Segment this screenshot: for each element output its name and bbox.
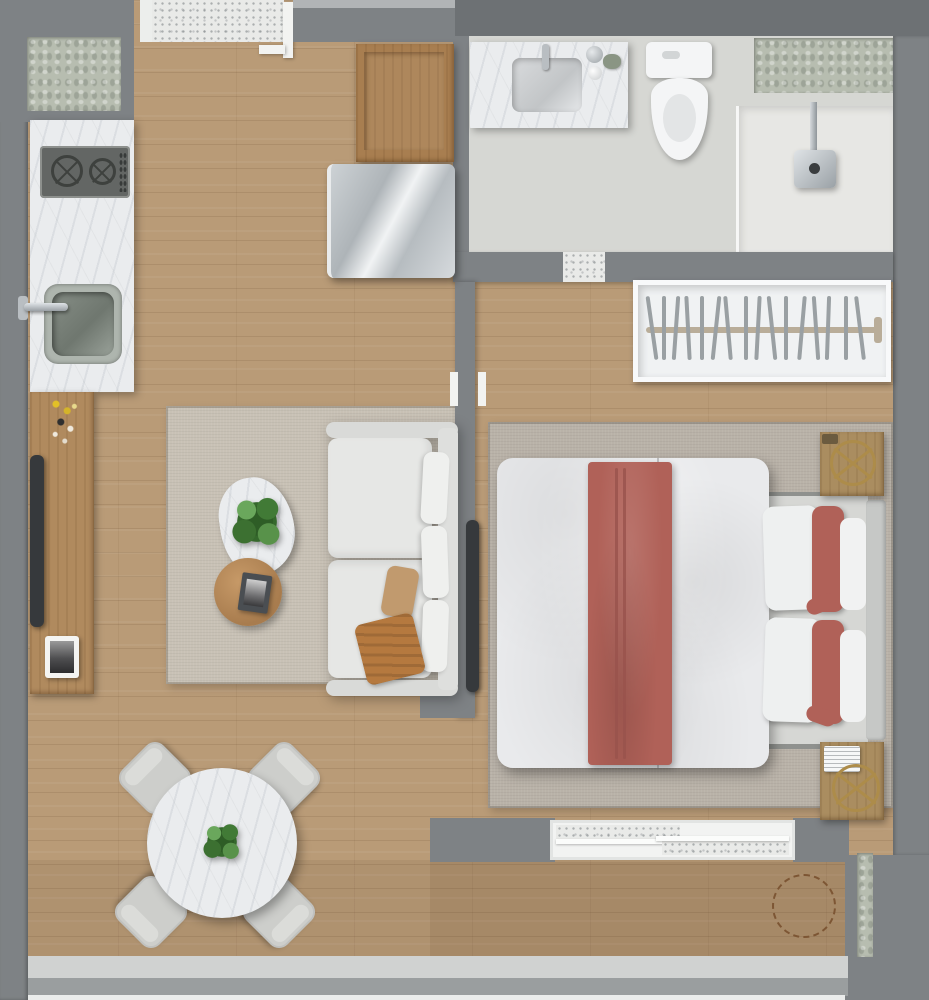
shower-head-center — [809, 163, 820, 174]
sofa-back-pillow-2 — [421, 526, 449, 599]
window-sill — [28, 956, 848, 978]
closet-hanger — [844, 296, 848, 360]
right-wall — [893, 36, 929, 855]
magazine-cover — [243, 579, 266, 608]
closet-hanger — [662, 296, 666, 360]
closet-hanger — [784, 296, 788, 360]
bed-runner — [588, 462, 672, 765]
vanity-accessory-cup — [588, 66, 602, 80]
kitchen-sink — [44, 284, 122, 364]
bathroom-bottom-wall — [453, 252, 893, 282]
toilet-flush-button — [662, 51, 680, 59]
toilet-tank — [646, 42, 712, 78]
shower-head — [794, 150, 836, 188]
cooktop-burner-large — [51, 155, 83, 187]
sink-basin — [52, 292, 114, 356]
console-flowers — [44, 394, 84, 450]
photo-portrait — [50, 641, 74, 673]
closet-rail-end — [874, 317, 882, 343]
kitchen-top-wall — [293, 8, 455, 42]
toilet-seat — [663, 94, 696, 142]
bathroom-door-threshold — [563, 252, 605, 282]
closet-hanger — [700, 296, 704, 360]
nightstand-top-item — [822, 434, 838, 444]
sliding-door — [550, 820, 795, 860]
shower-arm — [810, 102, 817, 154]
nightstand-top-tray — [830, 440, 876, 486]
shower-window — [754, 38, 893, 93]
bed-pillow-white-4 — [840, 630, 866, 722]
dining-table-plant — [200, 820, 244, 864]
photo-frame — [45, 636, 79, 678]
top-wall-edge — [293, 0, 455, 8]
cooktop-burner-small — [89, 158, 116, 185]
bathroom-top-wall — [455, 0, 929, 36]
balcony-slot-window — [857, 853, 873, 957]
sofa-back-pillow-3 — [421, 600, 449, 673]
magazine — [238, 572, 273, 614]
dashed-placement-circle — [772, 874, 836, 938]
floor-plan — [0, 0, 929, 1000]
bedroom-bottom-wall-left — [430, 818, 555, 862]
coffee-table-plant — [228, 492, 286, 552]
bed-pillow-white-2 — [840, 518, 866, 610]
nightstand-bottom-tray — [832, 764, 880, 812]
shower-glass-partition — [736, 106, 739, 258]
entry-corridor-floor — [152, 0, 284, 42]
vanity-accessory-dispenser — [586, 46, 603, 63]
kitchen-upper-cabinet — [356, 44, 454, 162]
console-tv — [30, 455, 44, 627]
sofa — [326, 422, 458, 696]
refrigerator — [327, 164, 455, 278]
sliding-door-panel-2-frame — [656, 836, 789, 841]
bedroom-bottom-wall-right — [793, 818, 849, 862]
vanity-faucet — [542, 44, 549, 70]
cabinet-panel — [364, 52, 444, 150]
bedroom-door-frame-b — [478, 372, 486, 406]
sliding-door-panel-2 — [662, 841, 789, 855]
window-frame — [28, 978, 848, 996]
bedroom-door-frame-a — [450, 372, 458, 406]
left-wall — [0, 0, 28, 1000]
sofa-cushion-1 — [328, 438, 432, 558]
bathroom-left-wall — [453, 36, 469, 282]
cooktop-knobs — [119, 152, 127, 192]
bed-headboard — [866, 500, 886, 740]
sofa-back-pillow-1 — [420, 451, 450, 524]
window-glass-edge — [28, 995, 845, 1000]
entry-door-leaf — [259, 45, 285, 54]
bedroom-wall-tv — [466, 520, 479, 692]
closet-hanger — [744, 296, 748, 360]
vanity-accessory-soap — [603, 54, 621, 69]
kitchen-frosted-window — [27, 37, 121, 111]
entry-side-frame — [140, 0, 152, 42]
cooktop — [40, 146, 130, 198]
kitchen-faucet — [24, 303, 68, 311]
